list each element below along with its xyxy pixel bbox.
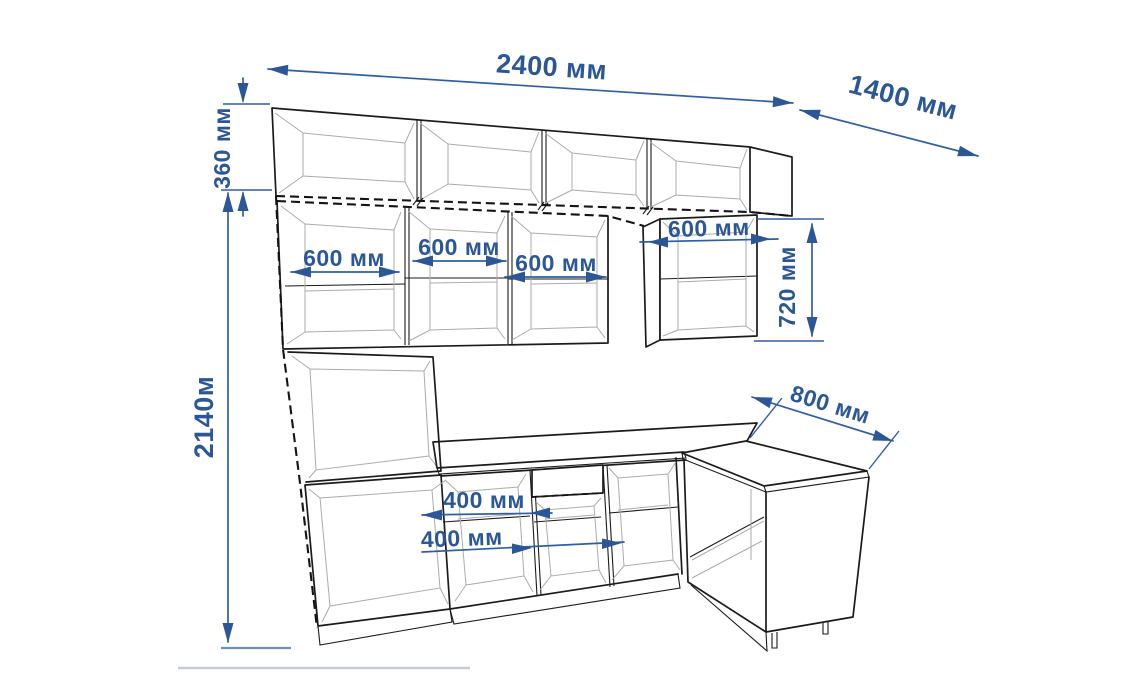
corner-peninsula-cabinet	[682, 423, 869, 651]
arrowhead	[238, 191, 249, 211]
arrowhead	[773, 96, 793, 107]
second-row-shelves	[285, 278, 608, 286]
arrowhead	[268, 65, 288, 76]
dimension-total-width: 2400 мм	[268, 48, 793, 107]
column-niche-outline	[288, 352, 441, 482]
dimension-label-wall-cabinet-height: 720 мм	[774, 246, 800, 328]
second-row-dividers	[405, 207, 512, 345]
peninsula-shelf	[690, 517, 764, 557]
arrowhead	[872, 430, 893, 441]
dimension-wall-cabinet-2: 600 мм	[413, 234, 506, 267]
wall-cabinets-top-row	[272, 108, 792, 216]
arrowhead	[238, 83, 249, 103]
arrowhead	[422, 510, 442, 521]
base-cab3-shelf	[534, 517, 601, 522]
arrowhead	[751, 234, 771, 245]
dimension-label-upper-row-height: 360 мм	[209, 107, 235, 189]
column-niche-interior	[292, 356, 437, 478]
dimension-label-base-cabinet-2: 400 мм	[420, 524, 503, 553]
dimension-label-right-depth: 1400 мм	[846, 69, 961, 126]
arrowhead	[752, 397, 773, 408]
dimension-label-wall-cabinet-4: 600 мм	[668, 214, 750, 242]
arrowhead	[223, 623, 234, 643]
dimension-right-depth: 1400 мм	[800, 69, 978, 156]
column-toe-kick	[318, 609, 452, 645]
dimension-wall-cabinet-1: 600 мм	[291, 245, 399, 278]
dimension-label-wall-cabinet-1: 600 мм	[303, 245, 385, 271]
dimension-upper-row-height: 360 мм	[209, 78, 272, 216]
arrowhead	[957, 146, 978, 157]
base-corner-interior	[609, 462, 680, 580]
peninsula-box-outline	[684, 460, 869, 632]
arrowhead	[807, 317, 818, 337]
top-row-outline	[272, 108, 792, 216]
corner-wall-cabinet-side	[643, 219, 660, 347]
dimension-label-wall-cabinet-2: 600 мм	[418, 234, 500, 260]
dimension-total-height: 2140м	[189, 192, 291, 648]
base-run-toe-kick	[450, 574, 680, 624]
dimension-label-total-height: 2140м	[189, 376, 219, 459]
arrowhead	[800, 110, 821, 121]
dimension-wall-cabinet-3: 600 мм	[505, 250, 606, 283]
peninsula-legs	[772, 621, 828, 648]
arrowhead	[807, 223, 818, 243]
arrowhead	[223, 192, 234, 212]
dimension-label-total-width: 2400 мм	[495, 48, 608, 85]
second-row-top-dashed-edge	[277, 201, 644, 226]
kitchen-dimensions-diagram: 2400 мм 1400 мм 360 мм 2140м 600 мм 600 …	[0, 0, 1123, 673]
dimension-label-wall-cabinet-3: 600 мм	[515, 250, 597, 276]
base-cab3-drawer-front	[532, 465, 603, 497]
dimension-label-base-cabinet-1: 400 мм	[443, 487, 525, 513]
kitchen-drawing-canvas: 2400 мм 1400 мм 360 мм 2140м 600 мм 600 …	[0, 0, 1123, 673]
peninsula-countertop-top	[682, 441, 867, 486]
peninsula-interior	[692, 489, 764, 578]
peninsula-kick-panel	[691, 585, 767, 651]
dimension-base-cabinet-2: 400 мм	[420, 524, 624, 554]
